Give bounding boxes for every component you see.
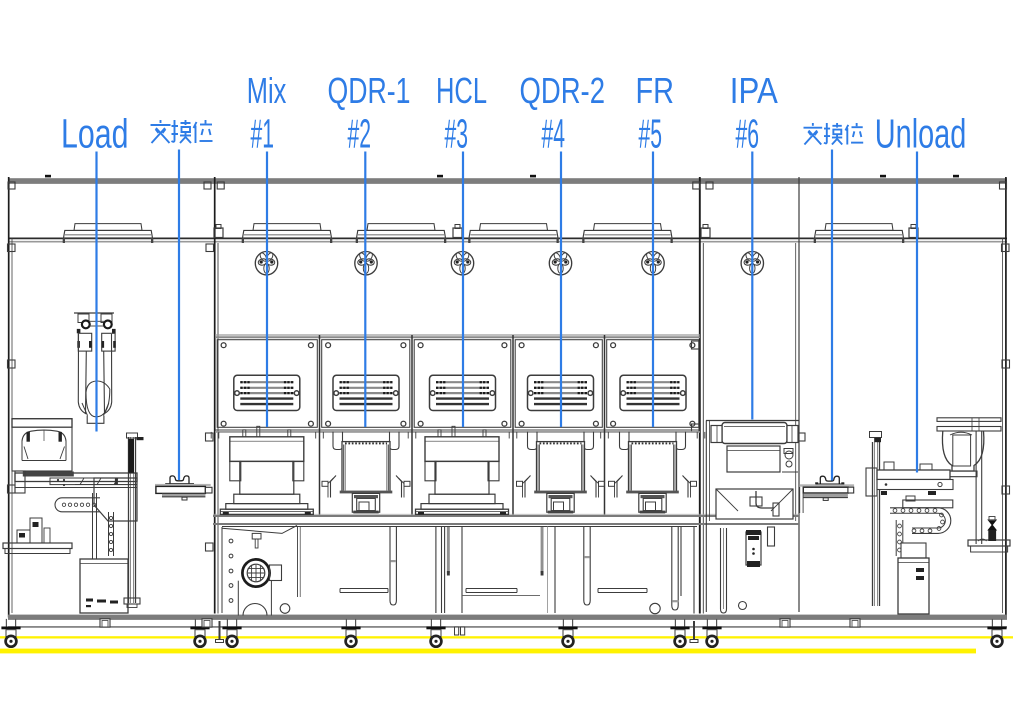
svg-text:#2: #2 (348, 110, 372, 156)
svg-text:Unload: Unload (875, 110, 967, 156)
svg-text:#3: #3 (445, 110, 469, 156)
svg-text:#1: #1 (251, 110, 275, 156)
svg-text:QDR-2: QDR-2 (520, 70, 606, 111)
svg-text:Mix: Mix (247, 70, 286, 111)
svg-text:IPA: IPA (730, 70, 778, 111)
svg-text:#6: #6 (736, 110, 760, 156)
svg-text:Load: Load (61, 110, 129, 156)
svg-text:HCL: HCL (436, 70, 487, 111)
svg-text:FR: FR (636, 70, 675, 111)
svg-text:#5: #5 (639, 110, 663, 156)
svg-text:QDR-1: QDR-1 (328, 70, 411, 111)
svg-text:#4: #4 (542, 110, 566, 156)
